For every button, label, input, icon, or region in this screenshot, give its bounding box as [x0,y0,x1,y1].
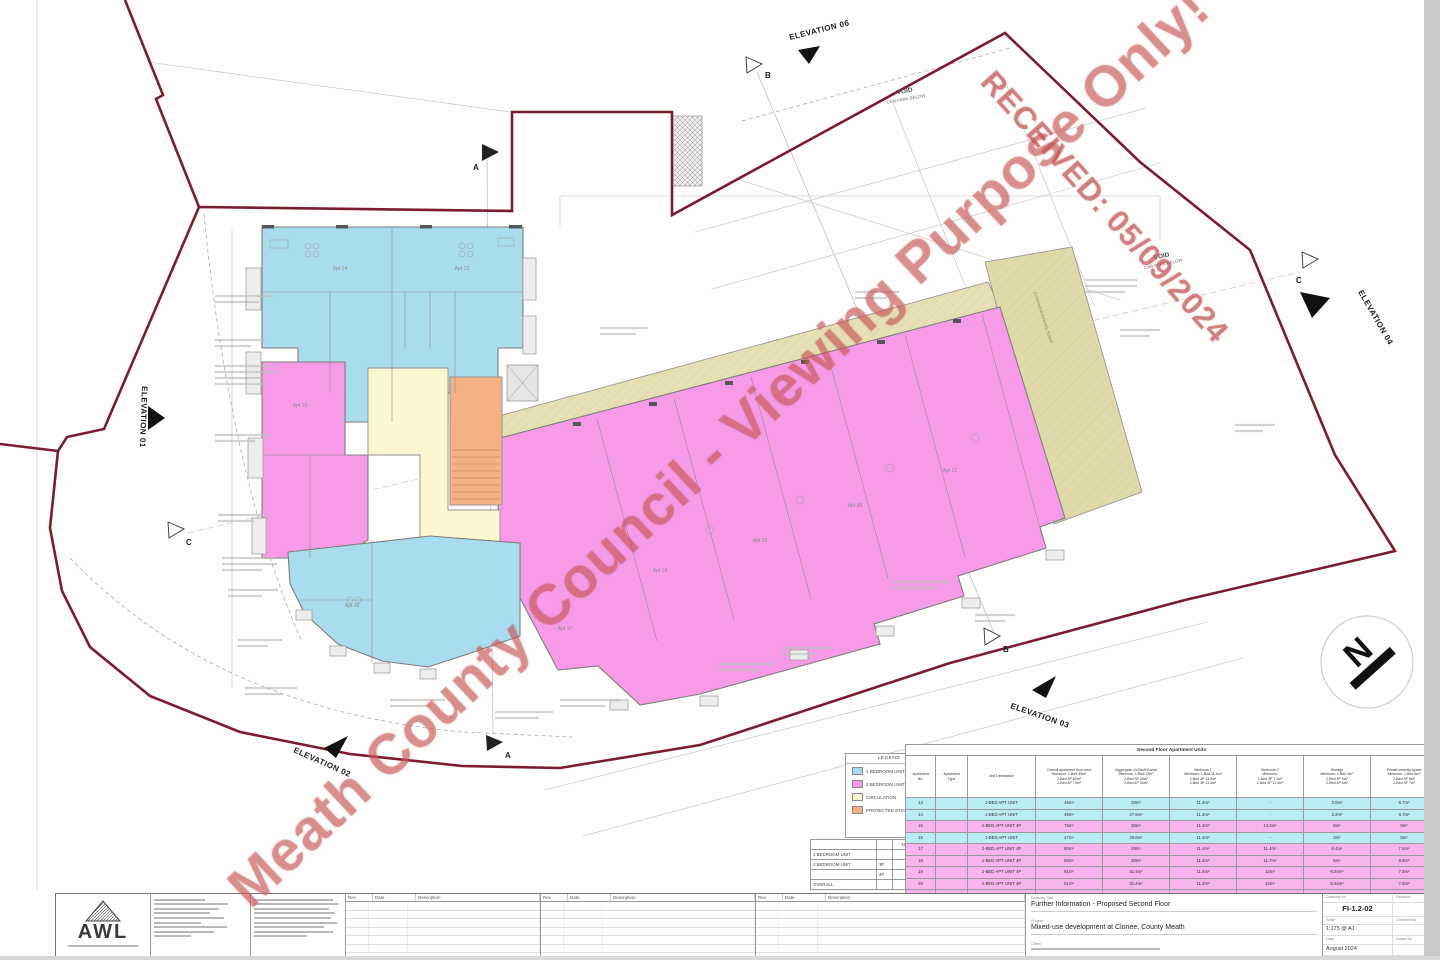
schedule-cell: 3m² [1304,832,1371,844]
summary-cell: 3P [876,860,892,870]
revision-header-cell: Description [416,894,540,901]
summary-header-cell [811,840,877,850]
schedule-header-cell: Bedroom 1 Minimum: 1-Bed 11.4m² 2-Bed 3P… [1170,756,1237,798]
date-value: August 2024 [1323,945,1393,956]
revision-empty-row [756,928,1025,937]
legend-swatch-icon [852,806,863,814]
hatched-structure [672,116,702,186]
section-b-bottom-label: B [1003,645,1009,654]
schedule-header-cell: Overall apartment floor area Minimum: 1-… [1036,756,1103,798]
summary-cell: 2 BEDROOM UNIT [811,860,877,870]
schedule-cell: 28m² [1103,844,1170,856]
void-label-2: VOID CAR PARK BELOW [1142,249,1184,271]
schedule-cell: 6m² [1304,855,1371,867]
section-c-right-label: C [1296,276,1302,285]
schedule-cell: 2-BED APT UNIT 4P [968,867,1036,879]
revision-empty-row [756,902,1025,911]
schedule-cell: 14 [906,809,936,821]
lift-shaft [507,365,538,401]
schedule-cell [936,855,968,867]
elevation-03-arrow-icon [1032,676,1056,698]
schedule-cell: 2-BED APT UNIT 4P [968,855,1036,867]
schedule-header-cell: Apartment Type [936,756,968,798]
schedule-cell: 81m² [1036,878,1103,890]
schedule-cell: 1-BED APT UNIT [968,832,1036,844]
schedule-cell: 18 [906,855,936,867]
unit-label: Apt 15 [293,403,308,409]
revision-header-cell: Date [373,894,416,901]
schedule-cell: 6.24m² [1304,867,1371,879]
schedule-cell [936,809,968,821]
revision-header-cell: Date [783,894,826,901]
legend-swatch-icon [852,767,863,775]
revision-empty-row [541,919,755,928]
schedule-cell: 26.6m² [1103,832,1170,844]
revision-header-cell: Rev [756,894,783,901]
schedule-cell: 17 [906,844,936,856]
client-label: Client [1031,942,1317,946]
schedule-header-cell: Bedroom 2 Minimum: 2-Bed 3P 7.1m² 2-Bed … [1237,756,1304,798]
legend-swatch-icon [852,780,863,788]
schedule-cell: 31.4m² [1103,867,1170,879]
summary-cell [811,870,877,880]
schedule-row: 131-BED APT UNIT46m²28m²11.4m²-3.0m²5.7m… [906,798,1438,810]
section-b-bottom-icon [984,628,1000,645]
schedule-header-cell: Aggregate Liv/Din/Kit area Minimum: 1-Be… [1103,756,1170,798]
schedule-cell: 12m² [1237,867,1304,879]
practice-address [151,894,251,956]
section-c-left-label: C [186,538,192,547]
revision-table-2: RevDateDescription [541,894,756,956]
awl-logo-text: AWL [78,922,128,942]
summary-cell: 1 BEDROOM UNIT [811,850,877,860]
revision-header-cell: Rev [541,894,568,901]
schedule-cell: 11.4m² [1170,821,1237,833]
revision-empty-row [541,911,755,920]
schedule-cell: 6.24m² [1304,878,1371,890]
revision-empty-row [346,945,540,954]
schedule-row: 192-BED APT UNIT 4P81m²31.4m²11.4m²12m²6… [906,867,1438,879]
summary-cell [876,850,892,860]
elevation-06-marker: ELEVATION 06 [788,18,850,64]
schedule-cell: - [1237,832,1304,844]
schedule-cell: - [1237,798,1304,810]
section-a-top-icon [482,144,499,161]
schedule-cell: 81m² [1036,867,1103,879]
section-c-right-icon [1302,252,1318,268]
schedule-cell: 80m² [1036,844,1103,856]
scale-value: 1:175 @ A1 [1323,925,1393,936]
schedule-cell: 75m² [1036,821,1103,833]
revision-header-cell: Description [611,894,755,901]
section-c-left-icon [168,522,184,538]
schedule-cell: 1-BED APT UNIT [968,798,1036,810]
schedule-cell [936,832,968,844]
revision-empty-row [541,936,755,945]
logo-cell: AWL [56,894,151,956]
scan-edge-bottom [0,956,1440,960]
drawing-title-label: Drawing Title [1031,896,1317,900]
revision-empty-row [346,911,540,920]
legend-swatch-icon [852,793,863,801]
schedule-cell: 13.2m² [1237,821,1304,833]
schedule-cell: 47m² [1036,832,1103,844]
schedule-row: 152-BED APT UNIT 4P75m²30m²11.4m²13.2m²6… [906,821,1438,833]
revision-table-1: RevDateDescription [346,894,541,956]
schedule-cell: 11.4m² [1170,832,1237,844]
scan-edge-right [1424,0,1440,960]
schedule-cell: 11.4m² [1170,855,1237,867]
schedule-cell: - [1237,809,1304,821]
schedule-cell: 1-BED APT UNIT [968,809,1036,821]
schedule-cell [936,844,968,856]
elevation-04-arrow-icon [1300,292,1330,318]
schedule-cell: 30m² [1103,821,1170,833]
revision-empty-row [541,902,755,911]
schedule-cell: 3.0m² [1304,798,1371,810]
revision-empty-row [541,928,755,937]
elevation-04-label: ELEVATION 04 [1356,289,1395,347]
schedule-cell: 12m² [1237,878,1304,890]
elevation-01-marker: ELEVATION 01 [138,386,165,448]
revision-empty-row [346,919,540,928]
revision-empty-row [756,945,1025,954]
unit-label: Apt 14 [333,266,348,272]
summary-cell: OVERALL [811,880,877,890]
elevation-04-marker: ELEVATION 04 [1300,289,1395,347]
schedule-cell: 11.4m² [1170,867,1237,879]
awl-logo-icon [82,900,124,922]
title-block: AWL RevDateDescription RevDateDescriptio… [55,893,1437,957]
schedule-cell: 11.4m² [1170,798,1237,810]
north-arrow-icon: N [1321,616,1413,708]
drawing-no-value: FI-1.2-02 [1323,903,1393,917]
drawing-title-value: Further Information - Proposed Second Fl… [1031,901,1317,908]
drawing-info-cell: Drawing Title Further Information - Prop… [1026,894,1323,956]
elevation-01-arrow-icon [148,406,165,430]
schedule-cell: 11.4m² [1170,878,1237,890]
schedule-cell: 11.4m² [1170,809,1237,821]
schedule-header-row: Apartment No.Apartment TypeUnit Descript… [906,756,1438,798]
revision-header-cell: Rev [346,894,373,901]
schedule-cell: 19 [906,867,936,879]
elevation-02-arrow-icon [324,736,348,758]
elevation-02-marker: ELEVATION 02 [292,736,352,779]
general-notes [251,894,346,956]
elevation-02-label: ELEVATION 02 [292,746,352,779]
apartment-block-blue-bottom [288,536,520,667]
revision-empty-row [756,919,1025,928]
project-label: Project [1031,919,1317,923]
section-b-top-label: B [765,71,771,80]
revision-empty-row [756,936,1025,945]
schedule-row: 202-BED APT UNIT 4P81m²31.4m²11.4m²12m²6… [906,878,1438,890]
unit-label: Apt 18 [653,568,668,574]
unit-label: Apt 19 [753,538,768,544]
schedule-cell: 28m² [1103,798,1170,810]
section-b-top-icon [746,57,762,73]
revision-empty-row [346,928,540,937]
drawing-no-label: Drawing No [1323,894,1393,903]
legend-item-label: CIRCULATION [866,795,896,800]
client-value-skeleton [1031,948,1160,950]
summary-cell: 4P [876,870,892,880]
section-a-top-label: A [473,163,479,172]
schedule-cell: 15 [906,821,936,833]
schedule-cell: 6m² [1304,821,1371,833]
revision-empty-row [346,902,540,911]
date-label: Date [1323,936,1393,945]
planning-drawing-page: { "watermarks": { "main": "Meath County … [0,0,1440,960]
schedule-row: 141-BED APT UNIT46m²27.5m²11.4m²-3.2m²5.… [906,809,1438,821]
revision-empty-row [756,911,1025,920]
schedule-cell: 27.5m² [1103,809,1170,821]
schedule-cell: 20 [906,878,936,890]
schedule-cell: 6.4m² [1304,844,1371,856]
revision-header-cell: Date [568,894,611,901]
schedule-cell: 2-BED APT UNIT 4P [968,821,1036,833]
schedule-cell: 11.4m² [1237,844,1304,856]
summary-cell [876,880,892,890]
elevation-06-arrow-icon [798,46,820,64]
schedule-cell: 31.4m² [1103,878,1170,890]
schedule-cell [936,878,968,890]
summary-header-cell [876,840,892,850]
schedule-row: 161-BED APT UNIT47m²26.6m²11.4m²-3m²5m² [906,832,1438,844]
schedule-cell: 2-BED APT UNIT 4P [968,878,1036,890]
unit-label: Apt 13 [455,266,470,272]
schedule-cell: 46m² [1036,809,1103,821]
unit-label: Apt 20 [848,503,863,509]
project-value: Mixed-use development at Clonee, County … [1031,924,1317,931]
schedule-title: Second Floor Apartment Units [906,745,1438,756]
unit-label: Apt 17 [558,626,573,632]
schedule-header-cell: Unit Description [968,756,1036,798]
schedule-header-cell: Storage Minimum: 1-Bed 3m² 2-Bed 3P 5m² … [1304,756,1371,798]
schedule-cell: 3.2m² [1304,809,1371,821]
legend-item-label: 1 BEDROOM UNIT [866,769,905,774]
schedule-cell: 46m² [1036,798,1103,810]
revision-header-row: RevDateDescription [756,894,1025,902]
elevation-03-marker: ELEVATION 03 [1009,676,1070,730]
apartment-wing-2bed [497,307,1065,705]
schedule-row: 182-BED APT UNIT 4P80m²30m²11.4m²11.7m²6… [906,855,1438,867]
drawing-number-cell: Drawing No Revision FI-1.2-02 Scale Chec… [1323,894,1436,956]
schedule-cell: 11.7m² [1237,855,1304,867]
unit-label: Apt 16 [345,603,360,609]
schedule-cell: 13 [906,798,936,810]
apartment-schedule-table: Second Floor Apartment UnitsApartment No… [905,744,1438,902]
elevation-01-label: ELEVATION 01 [138,386,149,448]
schedule-row: 172-BED APT UNIT 4P80m²28m²11.4m²11.4m²6… [906,844,1438,856]
revision-header-cell: Description [826,894,1025,901]
unit-label: Apt 21 [943,468,958,474]
revision-header-row: RevDateDescription [346,894,540,902]
revision-empty-row [541,945,755,954]
revision-header-row: RevDateDescription [541,894,755,902]
schedule-cell [936,821,968,833]
revision-empty-row [346,936,540,945]
revision-table-3: RevDateDescription [756,894,1026,956]
schedule-cell: 11.4m² [1170,844,1237,856]
logo-caption-skeleton [68,945,138,947]
legend-item-label: 2 BEDROOM UNIT [866,782,905,787]
section-a-bottom-label: A [505,751,511,760]
protected-stairway [450,377,502,505]
elevation-06-label: ELEVATION 06 [788,18,850,42]
section-a-bottom-icon [486,735,503,751]
schedule-cell: 16 [906,832,936,844]
schedule-header-cell: Apartment No. [906,756,936,798]
schedule-cell: 30m² [1103,855,1170,867]
elevation-03-label: ELEVATION 03 [1009,701,1070,730]
schedule-cell [936,867,968,879]
schedule-cell [936,798,968,810]
scale-label: Scale [1323,917,1393,926]
schedule-cell: 80m² [1036,855,1103,867]
schedule-cell: 2-BED APT UNIT 4P [968,844,1036,856]
